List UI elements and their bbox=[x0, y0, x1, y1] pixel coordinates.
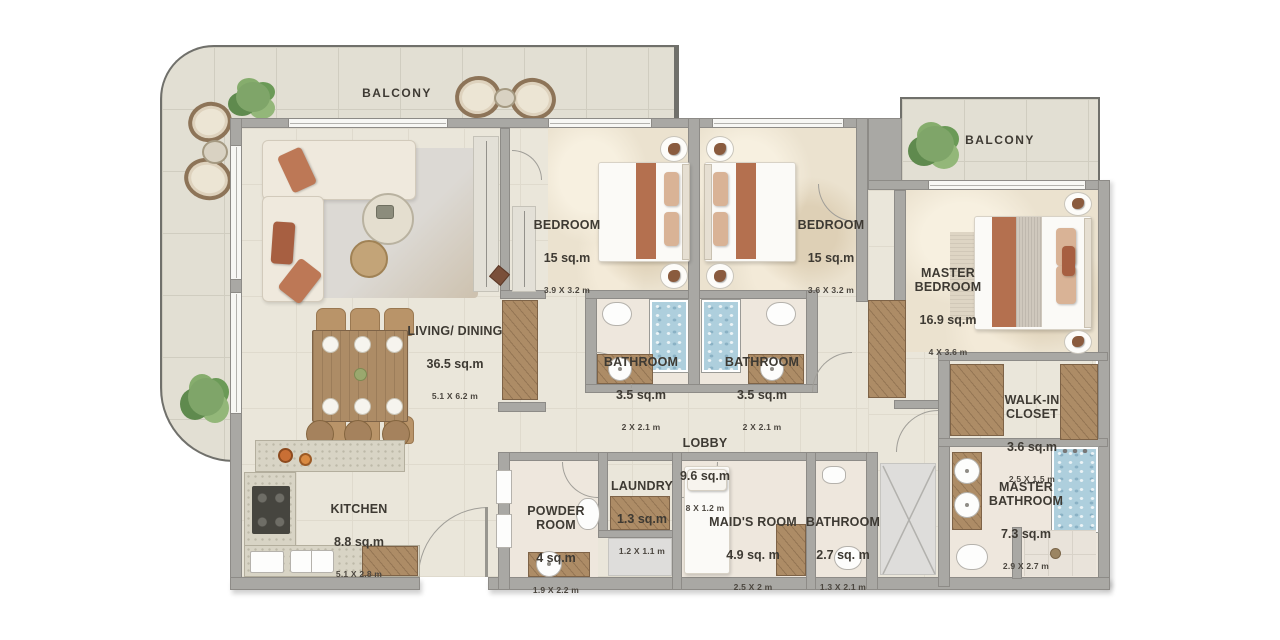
headboard bbox=[704, 164, 712, 260]
pillow-icon bbox=[664, 212, 679, 246]
stove-icon bbox=[252, 486, 290, 534]
shaft-x-icon bbox=[881, 464, 937, 576]
room-dims: 3.6 X 3.2 m bbox=[798, 285, 865, 296]
room-label-laundry: LAUNDRY 1.3 sq.m 1.2 X 1.1 m bbox=[611, 461, 673, 575]
toilet-icon bbox=[766, 302, 796, 326]
room-name: KITCHEN bbox=[331, 502, 388, 516]
sink-icon bbox=[954, 492, 980, 518]
kitchen-appliance-icon bbox=[250, 551, 284, 573]
room-area: 7.3 sq.m bbox=[989, 526, 1063, 543]
wall bbox=[598, 452, 608, 538]
bathtub-faucet-icon bbox=[1060, 449, 1090, 453]
nightstand-icon bbox=[660, 136, 688, 162]
room-area: 9.6 sq.m bbox=[680, 468, 730, 485]
room-name: LIVING/ DINING bbox=[407, 324, 502, 338]
plate-icon bbox=[322, 398, 339, 415]
plant-icon bbox=[188, 378, 224, 416]
shaft-box bbox=[496, 514, 512, 548]
hall-closet bbox=[512, 206, 536, 292]
room-dims: 3.9 X 3.2 m bbox=[534, 285, 601, 296]
balcony-label: BALCONY bbox=[965, 133, 1035, 147]
room-dims: 1.9 X 2.2 m bbox=[527, 585, 584, 596]
coffee-table-tray-icon bbox=[376, 205, 394, 219]
room-dims: 2 X 2.1 m bbox=[725, 422, 799, 433]
room-label-maids-room: MAID'S ROOM 4.9 sq. m 2.5 X 2 m bbox=[709, 497, 797, 611]
plant-icon bbox=[236, 82, 270, 112]
sink-icon bbox=[954, 458, 980, 484]
toilet-icon bbox=[956, 544, 988, 570]
centerpiece-icon bbox=[354, 368, 367, 381]
bowl-icon bbox=[299, 453, 312, 466]
room-name: BEDROOM bbox=[798, 218, 865, 232]
room-label-bedroom1: BEDROOM 15 sq.m 3.9 X 3.2 m bbox=[534, 200, 601, 314]
pillow-icon bbox=[713, 172, 728, 206]
wall bbox=[894, 400, 944, 409]
entrance-door-leaf bbox=[485, 507, 488, 577]
plate-icon bbox=[386, 398, 403, 415]
room-area: 15 sq.m bbox=[534, 250, 601, 267]
bed-runner bbox=[1016, 217, 1042, 327]
bed-runner bbox=[636, 163, 656, 259]
room-name: LAUNDRY bbox=[611, 479, 673, 493]
plant-icon bbox=[916, 126, 954, 162]
room-dims: 2.9 X 2.7 m bbox=[989, 561, 1063, 572]
room-name: BATHROOM bbox=[604, 355, 678, 369]
room-label-bathroom1: BATHROOM 3.5 sq.m 2 X 2.1 m bbox=[604, 337, 678, 451]
bed-runner bbox=[736, 163, 756, 259]
coffee-table-icon bbox=[362, 193, 414, 245]
balcony-top-floor bbox=[214, 45, 676, 122]
room-label-bathroom2: BATHROOM 3.5 sq.m 2 X 2.1 m bbox=[725, 337, 799, 451]
pillow-icon bbox=[664, 172, 679, 206]
room-area: 8.8 sq.m bbox=[331, 534, 388, 551]
window bbox=[230, 145, 242, 280]
floor-plan: BALCONY BALCONY LIVING/ DINING 36.5 sq.m… bbox=[0, 0, 1280, 640]
room-label-maid-bathroom: BATHROOM 2.7 sq. m 1.3 X 2.1 m bbox=[806, 497, 880, 611]
room-dims: 5.1 X 2.8 m bbox=[331, 569, 388, 580]
toilet-icon bbox=[602, 302, 632, 326]
bowl-icon bbox=[278, 448, 293, 463]
room-name: MAID'S ROOM bbox=[709, 515, 797, 529]
room-dims: 1.3 X 2.1 m bbox=[806, 582, 880, 593]
nightstand-icon bbox=[1064, 192, 1092, 216]
pillow-icon bbox=[271, 221, 296, 264]
room-dims: 5.1 X 6.2 m bbox=[407, 391, 502, 402]
wardrobe-icon bbox=[868, 300, 906, 398]
balcony-table-icon bbox=[202, 140, 228, 164]
wardrobe-icon bbox=[502, 300, 538, 400]
nightstand-icon bbox=[660, 263, 688, 289]
room-area: 1.3 sq.m bbox=[611, 511, 673, 528]
wall bbox=[585, 290, 818, 299]
room-area: 4.9 sq. m bbox=[709, 547, 797, 564]
window bbox=[712, 118, 844, 128]
balcony-table-icon bbox=[494, 88, 516, 108]
side-table-icon bbox=[350, 240, 388, 278]
window bbox=[288, 118, 448, 128]
room-dims: 2.5 X 2 m bbox=[709, 582, 797, 593]
wall bbox=[498, 402, 546, 412]
balcony-label: BALCONY bbox=[362, 86, 432, 100]
room-label-bedroom2: BEDROOM 15 sq.m 3.6 X 3.2 m bbox=[798, 200, 865, 314]
headboard bbox=[1084, 218, 1092, 328]
room-label-master-bedroom: MASTER BEDROOM 16.9 sq.m 4 X 3.6 m bbox=[915, 248, 982, 376]
balcony-end-wall bbox=[674, 45, 679, 120]
nightstand-icon bbox=[1064, 330, 1092, 354]
wall bbox=[894, 190, 906, 302]
room-label-walk-in-closet: WALK-IN CLOSET 3.6 sq.m 2.5 X 1.5 m bbox=[1005, 375, 1060, 503]
room-area: 4 sq.m bbox=[527, 550, 584, 567]
plate-icon bbox=[386, 336, 403, 353]
sink-divider bbox=[311, 551, 312, 572]
room-name: BEDROOM bbox=[534, 218, 601, 232]
bed-runner bbox=[992, 217, 1016, 327]
headboard bbox=[682, 164, 690, 260]
pillow-icon bbox=[713, 212, 728, 246]
room-area: 3.6 sq.m bbox=[1005, 439, 1060, 456]
room-dims: 1.2 X 1.1 m bbox=[611, 546, 673, 557]
room-name: MASTER BEDROOM bbox=[915, 266, 982, 294]
room-label-powder-room: POWDER ROOM 4 sq.m 1.9 X 2.2 m bbox=[527, 486, 584, 614]
room-name: POWDER ROOM bbox=[527, 504, 584, 532]
wall bbox=[1098, 180, 1110, 587]
room-area: 15 sq.m bbox=[798, 250, 865, 267]
window bbox=[928, 180, 1086, 190]
wall bbox=[938, 352, 950, 587]
room-label-living-dining: LIVING/ DINING 36.5 sq.m 5.1 X 6.2 m bbox=[407, 306, 502, 420]
room-area: 3.5 sq.m bbox=[604, 387, 678, 404]
nightstand-icon bbox=[706, 263, 734, 289]
window bbox=[548, 118, 652, 128]
pillow-icon bbox=[1062, 246, 1075, 276]
window bbox=[230, 292, 242, 414]
kitchen-sink-icon bbox=[290, 550, 334, 573]
service-shaft bbox=[880, 463, 936, 575]
room-name: BATHROOM bbox=[806, 515, 880, 529]
wall bbox=[230, 577, 420, 590]
room-name: LOBBY bbox=[680, 436, 730, 450]
room-area: 16.9 sq.m bbox=[915, 312, 982, 329]
room-dims: 2.5 X 1.5 m bbox=[1005, 474, 1060, 485]
room-label-kitchen: KITCHEN 8.8 sq.m 5.1 X 2.8 m bbox=[331, 484, 388, 598]
room-area: 36.5 sq.m bbox=[407, 356, 502, 373]
wardrobe-icon bbox=[1060, 364, 1098, 440]
room-name: BATHROOM bbox=[725, 355, 799, 369]
room-dims: 2 X 2.1 m bbox=[604, 422, 678, 433]
nightstand-icon bbox=[706, 136, 734, 162]
room-name: WALK-IN CLOSET bbox=[1005, 393, 1060, 421]
plate-icon bbox=[354, 336, 371, 353]
sink-icon bbox=[822, 466, 846, 484]
room-dims: 4 X 3.6 m bbox=[915, 347, 982, 358]
shaft-box bbox=[496, 470, 512, 504]
plate-icon bbox=[354, 398, 371, 415]
room-area: 3.5 sq.m bbox=[725, 387, 799, 404]
plate-icon bbox=[322, 336, 339, 353]
room-area: 2.7 sq. m bbox=[806, 547, 880, 564]
